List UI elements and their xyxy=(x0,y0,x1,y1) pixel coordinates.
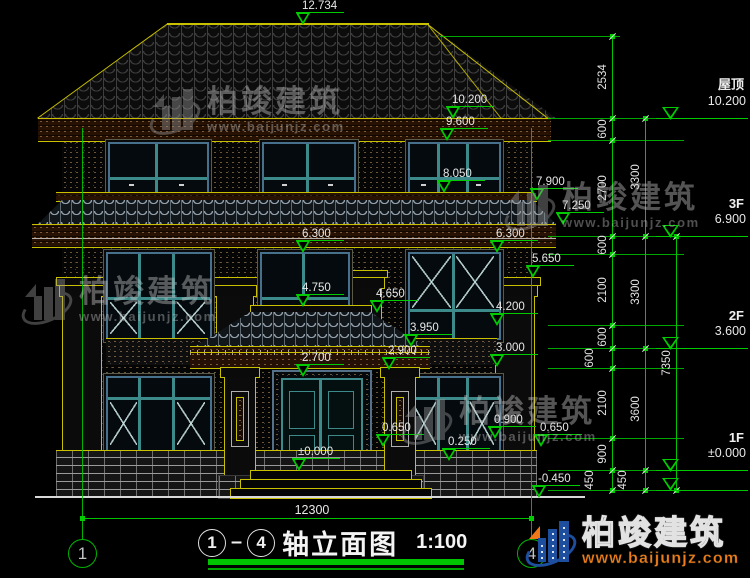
elevation-triangle-icon xyxy=(488,427,502,439)
elevation-triangle-icon xyxy=(440,129,454,141)
elevation-marker: 0.650 xyxy=(376,422,424,446)
canopy-fascia xyxy=(32,224,556,248)
elevation-value: 7.900 xyxy=(536,176,578,188)
level-triangle-icon xyxy=(662,225,679,238)
dim-segment-label: 2534 xyxy=(597,64,609,90)
elevation-triangle-icon xyxy=(370,301,384,313)
elevation-value: 7.250 xyxy=(562,200,604,212)
elevation-marker: 12.734 xyxy=(296,0,344,24)
elevation-value: 9.600 xyxy=(446,116,488,128)
dim-segment-label: 7350 xyxy=(661,350,673,376)
title-axis-start-bubble: 1 xyxy=(198,529,226,557)
elevation-triangle-icon xyxy=(296,13,310,25)
dim-chain-line xyxy=(645,118,646,490)
porch-column-right xyxy=(384,367,416,475)
title-underline-thick xyxy=(208,559,464,565)
window-3f-left xyxy=(108,142,209,196)
elevation-value: 4.200 xyxy=(496,301,538,313)
elevation-marker: 6.300 xyxy=(490,228,538,252)
brand-url: www.baijunjz.com xyxy=(582,551,739,567)
title-axis-start: 1 xyxy=(207,533,216,553)
elevation-value: 12.734 xyxy=(302,0,344,12)
canopy-tiles xyxy=(38,200,556,224)
dim-segment-label: 2100 xyxy=(597,390,609,416)
floor-level-marker: 2F 3.600 xyxy=(656,307,748,349)
elevation-marker: 0.250 xyxy=(442,436,490,460)
elevation-triangle-icon xyxy=(296,365,310,377)
elevation-triangle-icon xyxy=(490,355,504,367)
elevation-marker: 10.200 xyxy=(446,94,494,118)
canopy-fascia-line xyxy=(32,238,556,239)
ground-level-triangle-icon xyxy=(662,478,679,491)
elevation-triangle-icon xyxy=(437,181,451,193)
floor-level-name: 2F xyxy=(729,308,744,323)
elevation-marker: 0.900 xyxy=(488,414,536,438)
dim-segment-label: 600 xyxy=(597,327,609,346)
elevation-triangle-icon xyxy=(556,213,570,225)
elevation-marker: 7.250 xyxy=(556,200,604,224)
elevation-marker: 4.650 xyxy=(370,288,418,312)
dim-segment-label: 3300 xyxy=(630,279,642,305)
elevation-marker: 7.900 xyxy=(530,176,578,200)
elevation-marker: 2.700 xyxy=(296,352,344,376)
floor-level-name: 屋顶 xyxy=(718,74,744,93)
elevation-value: 0.250 xyxy=(448,436,490,448)
title-axis-end-bubble: 4 xyxy=(247,529,275,557)
bottom-dim-text: 12300 xyxy=(282,503,342,517)
elevation-marker: 0.650 xyxy=(534,422,582,446)
elevation-value: 6.300 xyxy=(496,228,538,240)
dim-chain-line xyxy=(612,36,613,490)
level-triangle-icon xyxy=(662,107,679,120)
elevation-triangle-icon xyxy=(490,241,504,253)
dim-segment-label: 600 xyxy=(584,348,596,367)
elevation-value: 0.650 xyxy=(382,422,424,434)
elevation-marker: 3.950 xyxy=(404,322,452,346)
elevation-value: 2.700 xyxy=(302,352,344,364)
title-underline-thin xyxy=(208,568,464,570)
elevation-marker: 5.650 xyxy=(526,253,574,277)
dim-segment-label: 600 xyxy=(597,119,609,138)
elevation-marker: 3.000 xyxy=(490,342,538,366)
elevation-value: -0.450 xyxy=(538,473,580,485)
elevation-triangle-icon xyxy=(296,241,310,253)
elevation-triangle-icon xyxy=(490,314,504,326)
dim-segment-label: 600 xyxy=(597,235,609,254)
floor-level-elevation: 6.900 xyxy=(715,212,746,226)
floor-level-elevation: 10.200 xyxy=(708,94,746,108)
elevation-value: 5.650 xyxy=(532,253,574,265)
window-2f-left xyxy=(106,252,212,340)
level-triangle-icon xyxy=(662,459,679,472)
elevation-value: 4.750 xyxy=(302,282,344,294)
elevation-value: 6.300 xyxy=(302,228,344,240)
elevation-value: 10.200 xyxy=(452,94,494,106)
floor-level-marker: 1F ±0.000 xyxy=(656,429,748,471)
elevation-value: 2.900 xyxy=(388,345,430,357)
dim-segment-label: 450 xyxy=(584,470,596,489)
elevation-value: ±0.000 xyxy=(298,446,340,458)
elevation-marker: -0.450 xyxy=(532,473,580,497)
elevation-value: 0.900 xyxy=(494,414,536,426)
drawing-title: 1 – 4 轴立面图 1:100 xyxy=(198,523,467,562)
elevation-triangle-icon xyxy=(532,486,546,498)
floor-level-marker: 3F 6.900 xyxy=(656,195,748,237)
elevation-marker: 2.900 xyxy=(382,345,430,369)
dim-extension-line xyxy=(440,36,620,37)
elevation-marker: 4.200 xyxy=(490,301,538,325)
dim-segment-label: 450 xyxy=(617,470,629,489)
elevation-triangle-icon xyxy=(530,189,544,201)
elevation-value: 4.650 xyxy=(376,288,418,300)
brand-logo-block: 柏竣建筑 www.baijunjz.com xyxy=(526,514,739,568)
dim-segment-label: 2100 xyxy=(597,277,609,303)
elevation-marker: 9.600 xyxy=(440,116,488,140)
floor-level-marker: 屋顶 10.200 xyxy=(656,77,748,119)
level-triangle-icon xyxy=(662,337,679,350)
axis-bubble-1: 1 xyxy=(68,539,97,568)
axis-line-1 xyxy=(82,128,83,539)
axis-bubble-1-label: 1 xyxy=(78,544,87,564)
elevation-value: 0.650 xyxy=(540,422,582,434)
dim-tick xyxy=(80,516,85,521)
title-text: 轴立面图 xyxy=(282,523,398,562)
elevation-triangle-icon xyxy=(526,266,540,278)
elevation-triangle-icon xyxy=(534,435,548,447)
dim-segment-label: 2700 xyxy=(597,175,609,201)
bottom-dim-line xyxy=(82,518,532,519)
dim-segment-label: 3300 xyxy=(630,164,642,190)
title-axis-end: 4 xyxy=(256,533,265,553)
elevation-value: 8.050 xyxy=(443,168,485,180)
elevation-triangle-icon xyxy=(382,358,396,370)
elevation-marker: 8.050 xyxy=(437,168,485,192)
title-dash: – xyxy=(231,531,242,554)
elevation-value: 3.000 xyxy=(496,342,538,354)
elevation-value: 3.950 xyxy=(410,322,452,334)
elevation-triangle-icon xyxy=(296,295,310,307)
dim-segment-label: 900 xyxy=(597,444,609,463)
window-1f-left xyxy=(106,376,212,452)
cad-canvas: 1 4 12300 1 – 4 轴立面图 1:100 柏竣建筑 www.baij… xyxy=(0,0,750,578)
elevation-marker: 4.750 xyxy=(296,282,344,306)
floor-level-elevation: ±0.000 xyxy=(708,446,746,460)
title-scale: 1:100 xyxy=(416,531,467,554)
brand-name: 柏竣建筑 xyxy=(582,516,739,549)
floor-level-name: 1F xyxy=(729,430,744,445)
window-3f-center xyxy=(262,142,356,196)
elevation-marker: 6.300 xyxy=(296,228,344,252)
elevation-triangle-icon xyxy=(292,459,306,471)
elevation-marker: ±0.000 xyxy=(292,446,340,470)
brand-logo-icon xyxy=(526,514,576,568)
floor-level-name: 3F xyxy=(729,196,744,211)
elevation-triangle-icon xyxy=(376,435,390,447)
floor-level-elevation: 3.600 xyxy=(715,324,746,338)
porch-column-left xyxy=(224,367,256,475)
ground-line xyxy=(35,496,585,498)
dim-segment-label: 3600 xyxy=(630,396,642,422)
elevation-triangle-icon xyxy=(442,449,456,461)
dim-extension-line xyxy=(548,140,684,141)
